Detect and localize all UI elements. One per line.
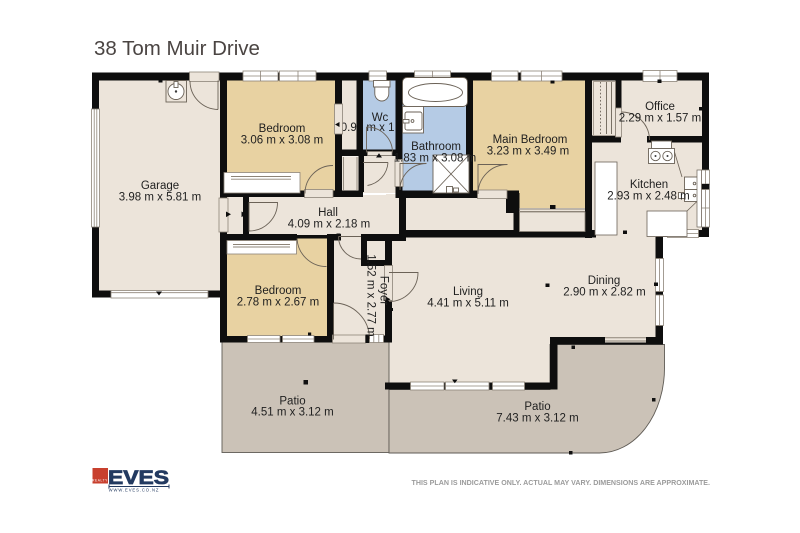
svg-text:3.06 m x 3.08 m: 3.06 m x 3.08 m [241, 135, 323, 147]
svg-text:1.83 m x 3.08 m: 1.83 m x 3.08 m [394, 153, 476, 165]
svg-text:4.41 m x 5.11 m: 4.41 m x 5.11 m [427, 298, 509, 310]
svg-text:7.43 m x 3.12 m: 7.43 m x 3.12 m [496, 413, 578, 425]
svg-text:Bedroom: Bedroom [259, 123, 306, 135]
svg-text:WWW.EVES.CO.NZ: WWW.EVES.CO.NZ [109, 488, 160, 493]
svg-text:38 Tom Muir Drive: 38 Tom Muir Drive [94, 37, 260, 60]
svg-text:Patio: Patio [524, 401, 550, 413]
svg-text:3.23 m x 3.49 m: 3.23 m x 3.49 m [487, 146, 569, 158]
svg-text:Wc: Wc [372, 112, 389, 124]
svg-text:2.78 m x 2.67 m: 2.78 m x 2.67 m [237, 297, 319, 309]
svg-text:3.98 m x 5.81 m: 3.98 m x 5.81 m [119, 192, 201, 204]
svg-text:4.09 m x 2.18 m: 4.09 m x 2.18 m [288, 219, 370, 231]
svg-text:2.90 m x 2.82 m: 2.90 m x 2.82 m [563, 287, 645, 299]
svg-text:Main Bedroom: Main Bedroom [493, 134, 568, 146]
svg-text:1.52 m x 2.77 m: 1.52 m x 2.77 m [364, 254, 376, 336]
svg-text:Living: Living [453, 286, 483, 298]
svg-text:Dining: Dining [588, 275, 621, 287]
svg-text:Bathroom: Bathroom [411, 141, 461, 153]
svg-text:Garage: Garage [141, 180, 179, 192]
svg-text:Foyer: Foyer [377, 276, 389, 306]
svg-text:Hall: Hall [318, 207, 338, 219]
svg-text:2.29 m x 1.57 m: 2.29 m x 1.57 m [619, 113, 701, 125]
svg-text:REALTY: REALTY [92, 479, 108, 483]
svg-text:EVES: EVES [108, 467, 169, 489]
svg-text:2.93 m x 2.48 m: 2.93 m x 2.48 m [607, 191, 689, 203]
svg-text:Kitchen: Kitchen [630, 179, 668, 191]
svg-text:Bedroom: Bedroom [255, 285, 302, 297]
svg-text:THIS PLAN IS INDICATIVE ONLY.: THIS PLAN IS INDICATIVE ONLY. ACTUAL MAY… [412, 479, 711, 487]
svg-text:Office: Office [645, 101, 675, 113]
svg-text:4.51 m x 3.12 m: 4.51 m x 3.12 m [251, 407, 333, 419]
